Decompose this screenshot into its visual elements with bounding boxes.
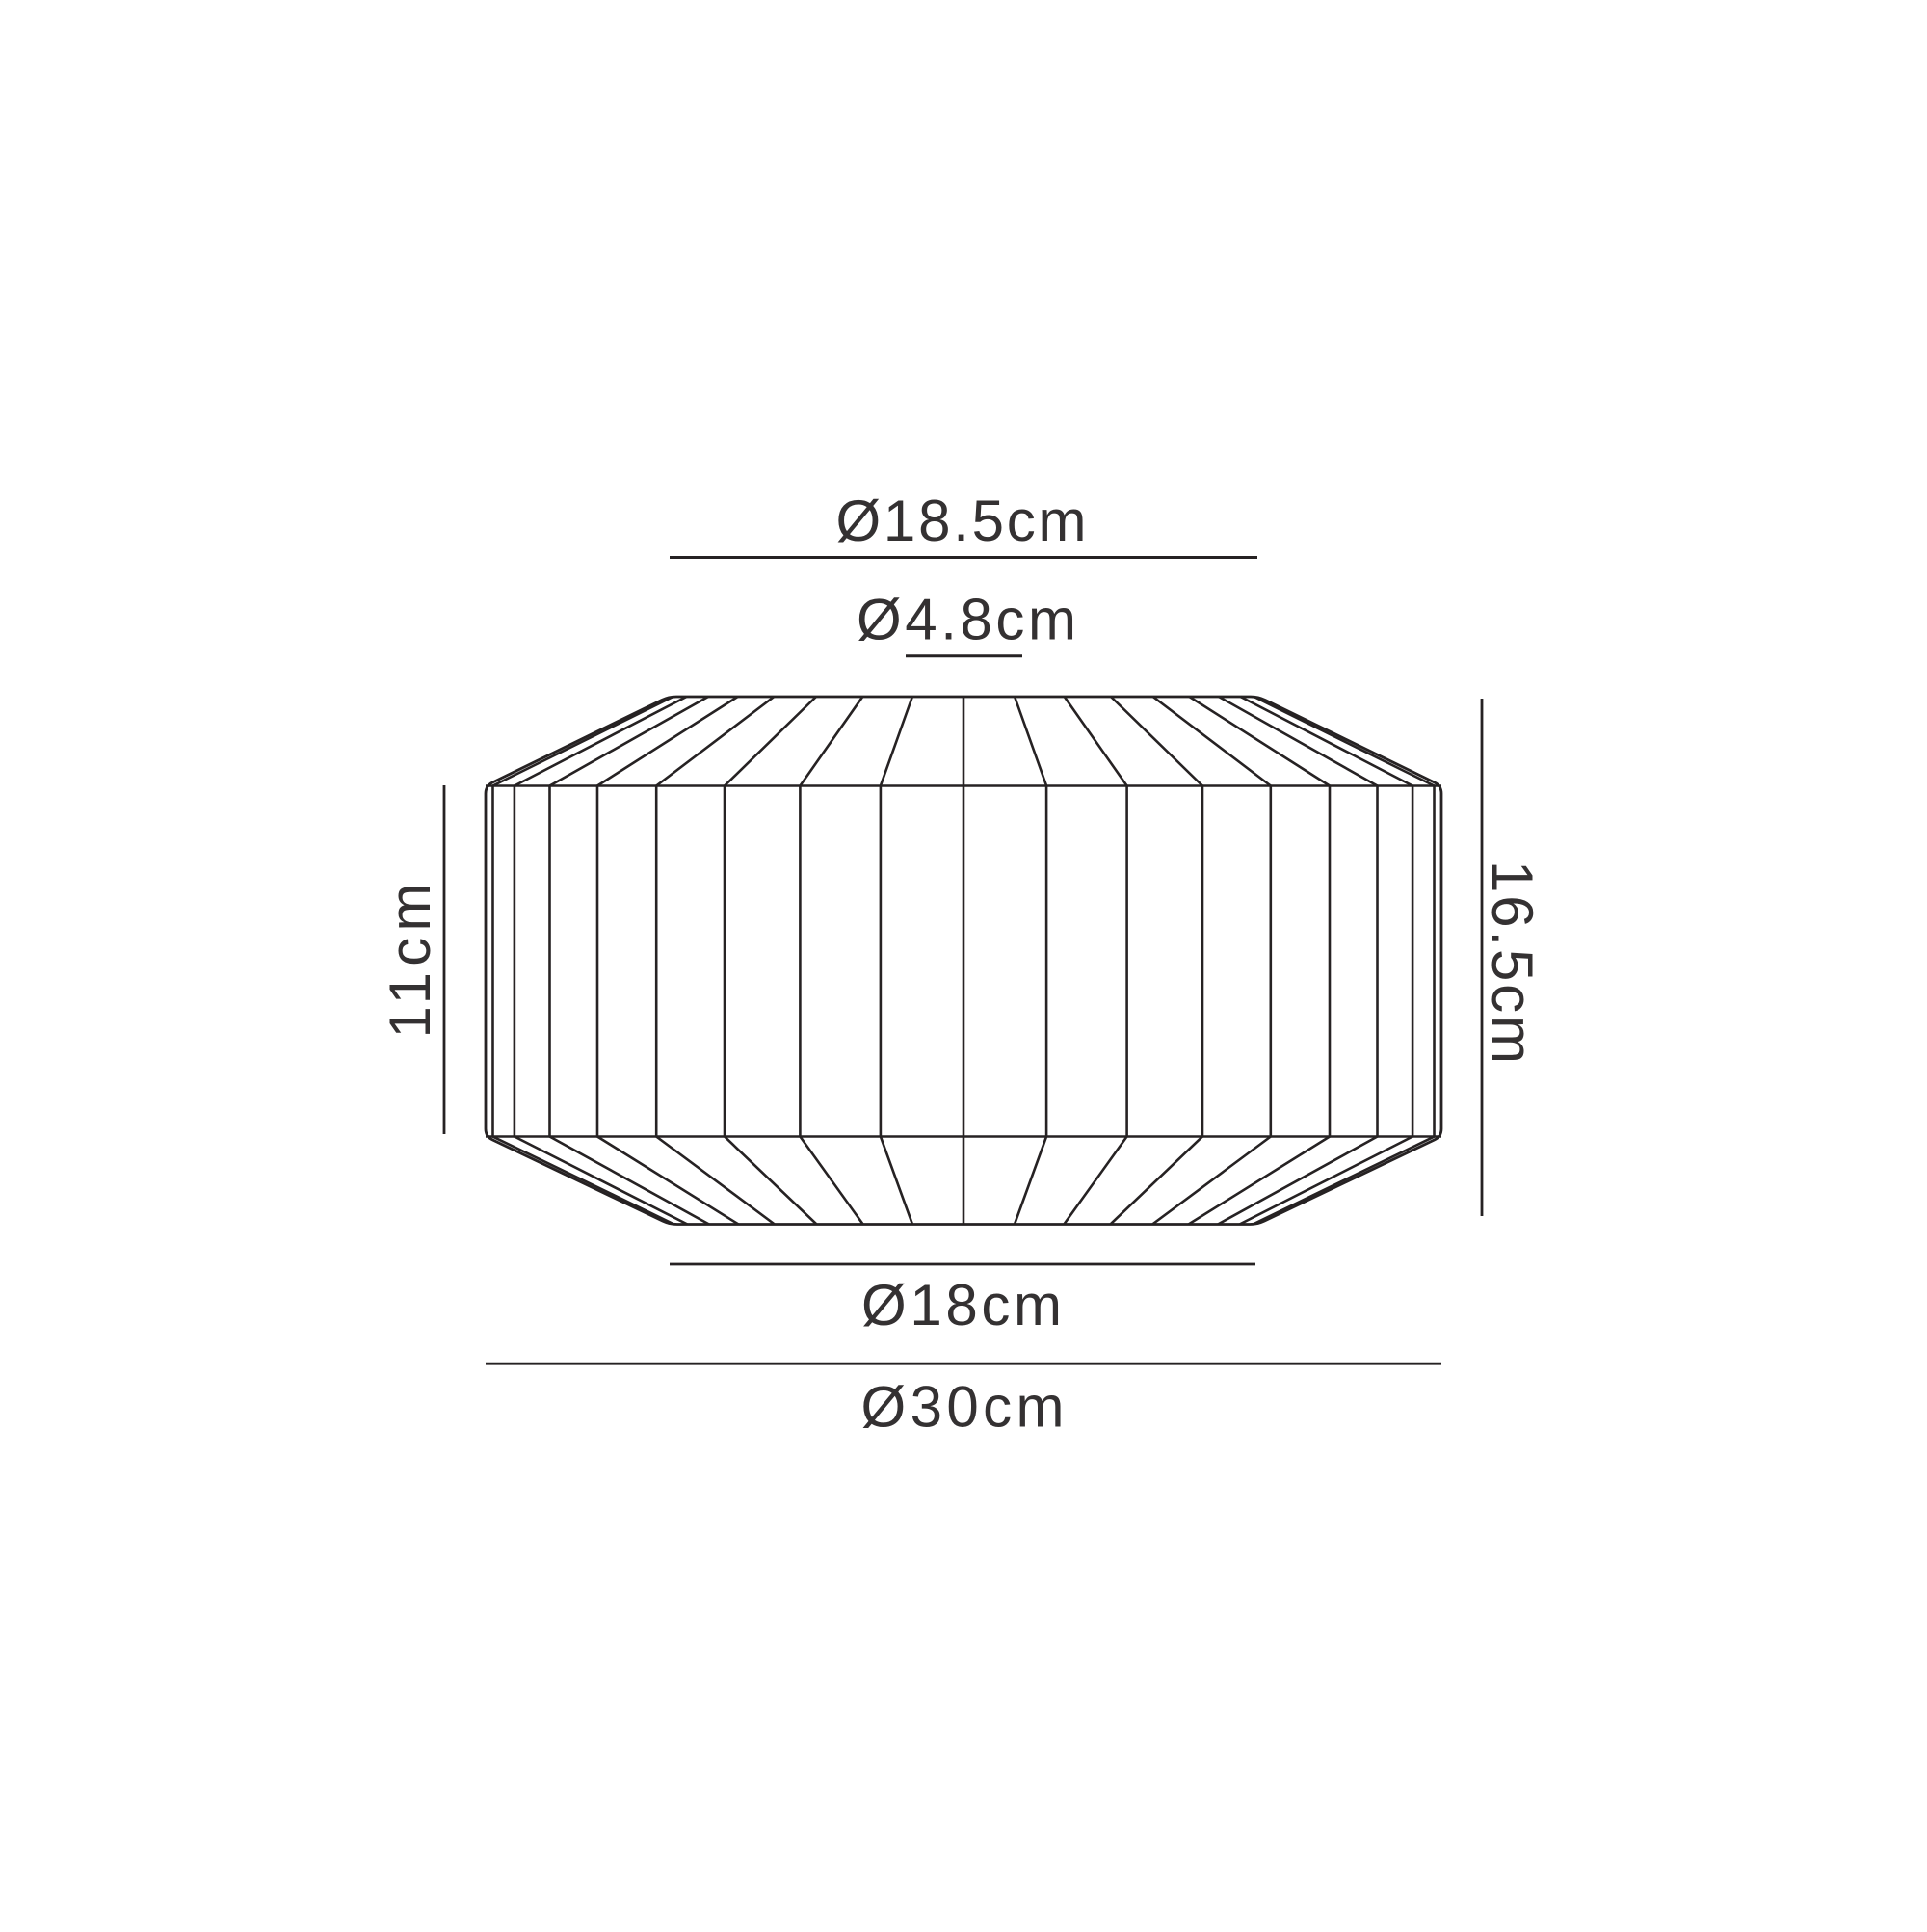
svg-text:Ø18.5cm: Ø18.5cm xyxy=(836,489,1087,553)
svg-text:Ø18cm: Ø18cm xyxy=(861,1273,1062,1337)
svg-text:16.5cm: 16.5cm xyxy=(1480,860,1544,1064)
svg-text:Ø4.8cm: Ø4.8cm xyxy=(857,588,1076,652)
svg-text:Ø30cm: Ø30cm xyxy=(861,1375,1065,1440)
svg-text:11cm: 11cm xyxy=(378,884,442,1039)
